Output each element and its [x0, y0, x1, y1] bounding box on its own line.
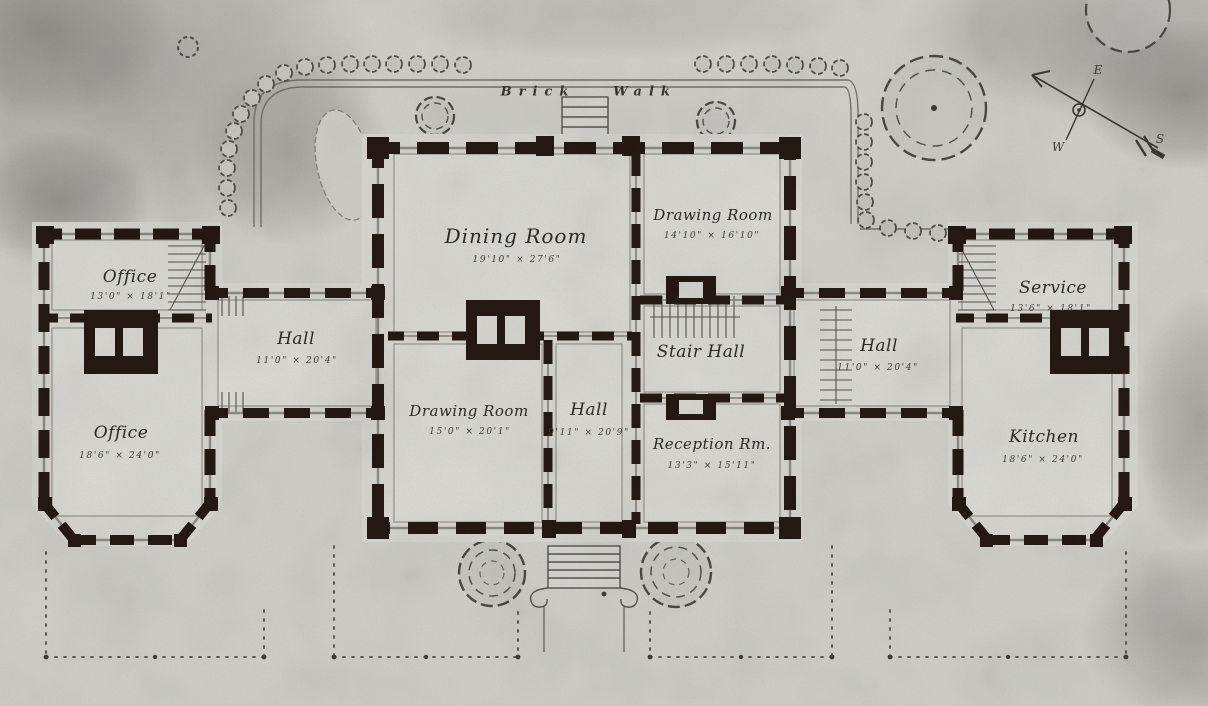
room-label-hall-right: Hall [860, 336, 898, 356]
room-dims-office-lower: 18'6" × 24'0" [79, 451, 161, 461]
room-dims-dining: 19'10" × 27'6" [473, 255, 562, 265]
compass-south-label: S [1156, 132, 1164, 146]
brick-walk-label-1: Brick [501, 85, 576, 100]
room-dims-drawing-lower: 15'0" × 20'1" [429, 427, 511, 437]
room-dims-kitchen: 18'6" × 24'0" [1002, 455, 1084, 465]
room-label-service: Service [1019, 278, 1087, 298]
room-label-office-upper: Office [103, 267, 158, 287]
room-dims-office-upper: 13'0" × 18'1" [90, 292, 172, 302]
room-dims-hall-center: 9'11" × 20'9" [548, 428, 630, 438]
room-label-kitchen: Kitchen [1009, 427, 1079, 447]
floorplan-drawing [0, 0, 1208, 706]
room-label-office-lower: Office [94, 423, 149, 443]
room-label-hall-center: Hall [570, 400, 608, 420]
room-dims-service: 13'6" × 18'1" [1010, 304, 1092, 314]
floor-plan-canvas: Brick Walk Office 13'0" × 18'1" Hall 11'… [0, 0, 1208, 706]
room-label-hall-left: Hall [277, 329, 315, 349]
compass-east-label: E [1094, 63, 1103, 77]
room-dims-hall-left: 11'0" × 20'4" [256, 356, 338, 366]
room-dims-hall-right: 11'0" × 20'4" [837, 363, 919, 373]
compass-west-label: W [1052, 140, 1064, 154]
grain-texture [0, 0, 1208, 706]
room-label-drawing-upper: Drawing Room [653, 206, 772, 224]
room-dims-reception: 13'3" × 15'11" [668, 461, 757, 471]
room-label-dining: Dining Room [445, 224, 588, 248]
room-dims-drawing-upper: 14'10" × 16'10" [664, 231, 760, 241]
room-label-stair-hall: Stair Hall [657, 342, 745, 362]
room-label-drawing-lower: Drawing Room [409, 402, 528, 420]
brick-walk-label-2: Walk [613, 85, 677, 100]
room-label-reception: Reception Rm. [653, 435, 771, 453]
